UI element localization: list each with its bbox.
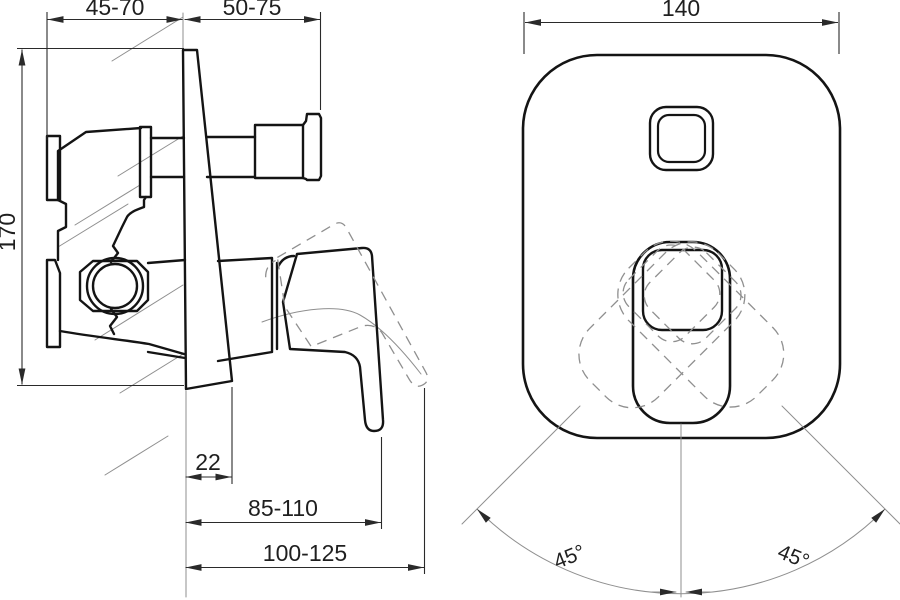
lever-handle-front [633,242,730,423]
dim-lever-max-depth: 100-125 [263,540,347,566]
construction-lines-side [58,13,421,597]
technical-drawing-page: 45-70 50-75 170 22 85-110 100-125 [0,0,900,600]
lever-dashed-left-outline [603,226,800,423]
swing-construction [462,406,900,597]
cartridge-housing-lines [148,260,185,358]
hatch-line [105,436,168,475]
diverter-button-outer [650,107,713,170]
dim-plate-depth: 22 [195,449,221,475]
dim-wall-to-outlet: 50-75 [223,0,282,20]
lever-handle-side-dashed [258,216,431,426]
side-view-dimensions: 45-70 50-75 170 22 85-110 100-125 [0,0,425,574]
lever-dashed-left [603,226,800,423]
hatch-line [120,354,183,393]
lever-dashed-right [564,227,761,424]
swing-radial-left [462,406,580,524]
dim-plate-width: 140 [662,0,700,21]
front-view: 140 45° 45° [462,0,900,597]
front-outlines [523,55,840,438]
hatch-line [75,185,140,225]
lever-dashed-right-face [636,239,748,351]
mounting-flange-lower [47,260,60,347]
outlet-pipe-behind-wall [151,138,184,177]
side-view: 45-70 50-75 170 22 85-110 100-125 [0,0,430,597]
spout-end-cap [303,114,321,180]
diverter-button-inner [658,115,705,162]
lever-handle-front-face [643,250,722,330]
inlet-port-outer [87,258,143,314]
spout-body [255,125,303,178]
hatch-line [112,17,183,61]
wall-plate-side [183,50,232,389]
hatch-line [58,204,128,247]
inlet-port-inner [93,264,137,308]
valve-body-top [58,128,141,200]
valve-body-bottom [60,331,184,354]
valve-body-waist [58,200,66,260]
mixer-technical-drawing: 45-70 50-75 170 22 85-110 100-125 [0,0,900,600]
handle-cap-dome [278,256,294,267]
dim-swing-right: 45° [774,540,812,573]
dim-swing-left: 45° [551,540,589,573]
dim-lever-depth: 85-110 [248,495,318,521]
swing-radial-right [782,406,900,524]
trim-sleeve [218,258,277,361]
rough-in-valve [47,50,383,431]
dim-height: 170 [0,213,20,251]
lever-handle-side [283,248,383,431]
dim-flange-to-wall: 45-70 [86,0,145,20]
spout-pipe [207,137,255,177]
valve-body-right-edge [111,197,146,262]
lever-dashed-right-outline [564,227,761,424]
lever-handle-side-dashed-outline [262,216,430,424]
wall-plate-front [523,55,840,438]
